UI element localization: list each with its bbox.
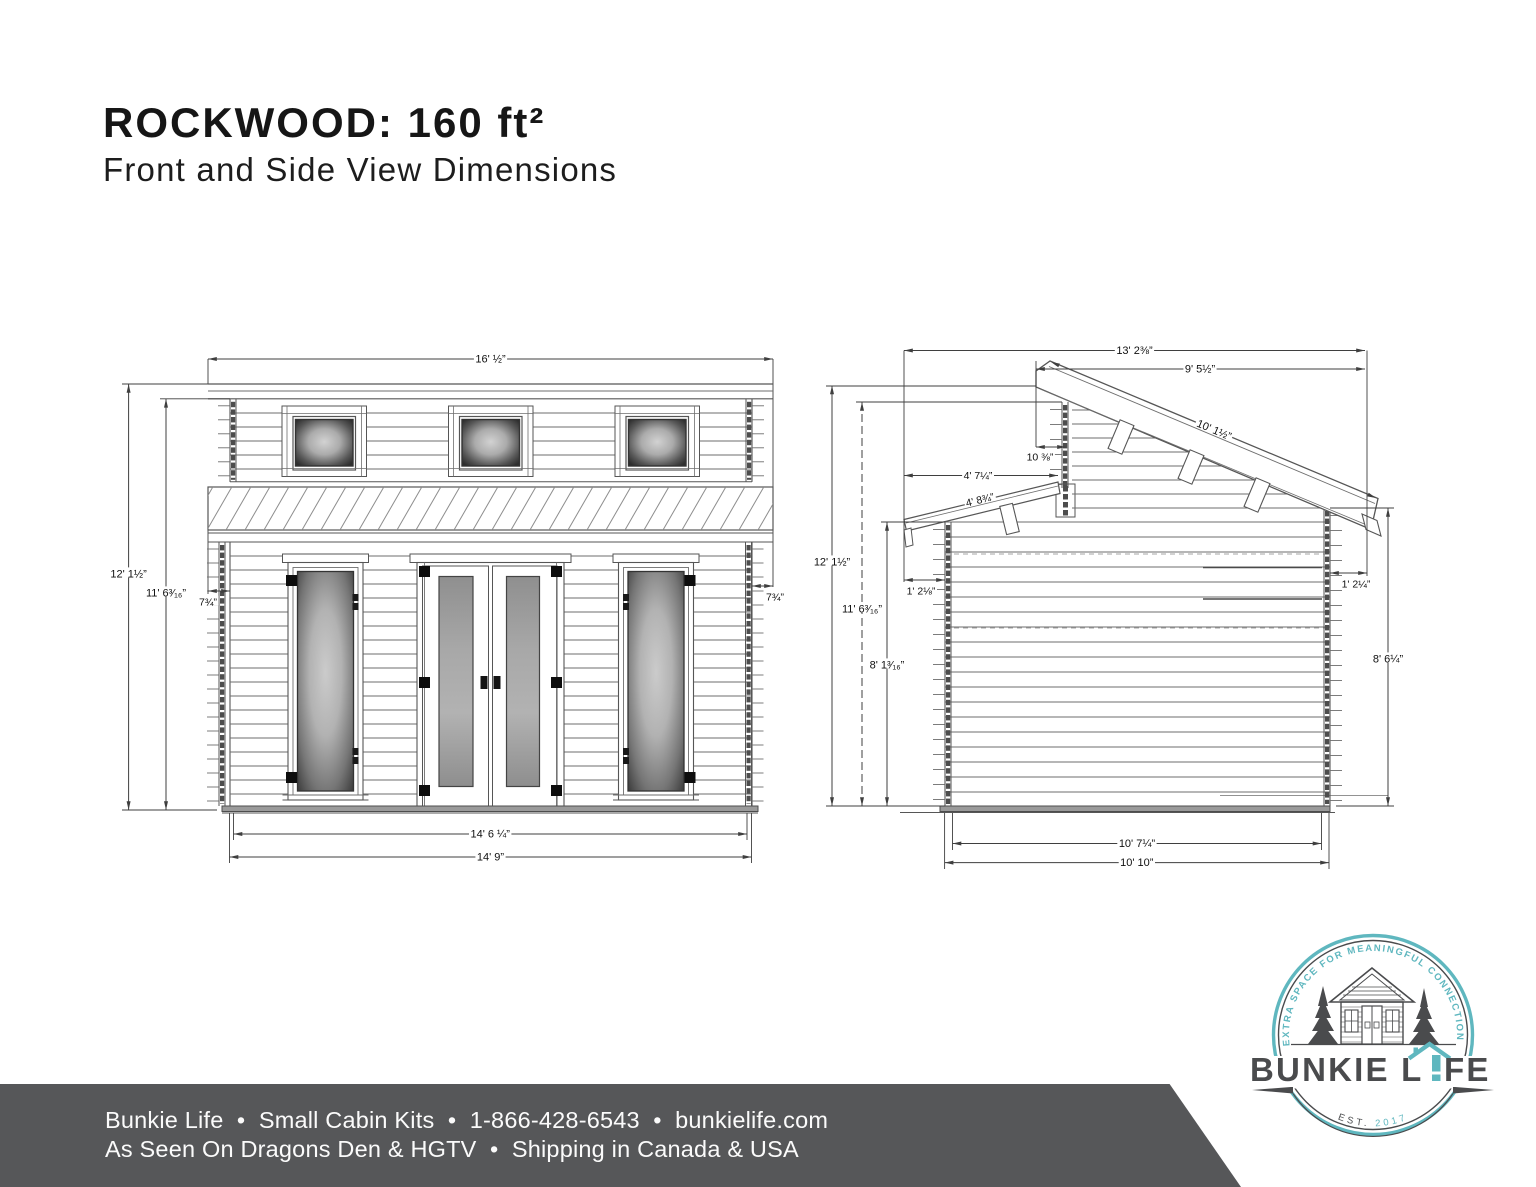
- svg-text:8' 6¼”: 8' 6¼”: [1373, 654, 1404, 666]
- svg-text:FE: FE: [1444, 1051, 1491, 1088]
- svg-text:10 ⅜”: 10 ⅜”: [1027, 451, 1054, 463]
- svg-text:BUNKIE L: BUNKIE L: [1250, 1051, 1423, 1088]
- svg-text:11' 6³⁄₁₆”: 11' 6³⁄₁₆”: [146, 588, 186, 600]
- svg-text:12' 1½”: 12' 1½”: [814, 557, 851, 569]
- svg-text:11' 6³⁄₁₆”: 11' 6³⁄₁₆”: [842, 604, 882, 616]
- svg-text:14' 9”: 14' 9”: [477, 852, 505, 864]
- svg-text:9' 5½”: 9' 5½”: [1185, 364, 1216, 376]
- svg-text:7¾”: 7¾”: [199, 596, 218, 608]
- svg-text:8' 1³⁄₁₆”: 8' 1³⁄₁₆”: [870, 660, 905, 672]
- svg-text:10' 7¼”: 10' 7¼”: [1119, 838, 1156, 850]
- svg-text:10' 10”: 10' 10”: [1120, 857, 1154, 869]
- svg-text:13' 2⅜”: 13' 2⅜”: [1116, 345, 1153, 357]
- svg-text:7¾”: 7¾”: [766, 591, 785, 603]
- svg-text:16' ½”: 16' ½”: [475, 354, 506, 366]
- svg-text:1' 2¼”: 1' 2¼”: [1342, 578, 1371, 590]
- svg-text:1' 2⅛”: 1' 2⅛”: [907, 585, 936, 597]
- svg-text:14' 6 ¼”: 14' 6 ¼”: [470, 829, 510, 841]
- svg-text:Bunkie Life • Small Cabin Ki: Bunkie Life • Small Cabin Kits • 1-866-4…: [105, 1107, 828, 1133]
- svg-text:As Seen On Dragons Den & HGTV: As Seen On Dragons Den & HGTV • Shipping…: [105, 1136, 799, 1162]
- svg-text:Front and Side View Dimensions: Front and Side View Dimensions: [103, 151, 617, 188]
- svg-text:4' 7¼”: 4' 7¼”: [964, 470, 993, 482]
- svg-text:12' 1½”: 12' 1½”: [110, 569, 147, 581]
- svg-text:ROCKWOOD: 160 ft²: ROCKWOOD: 160 ft²: [103, 99, 545, 146]
